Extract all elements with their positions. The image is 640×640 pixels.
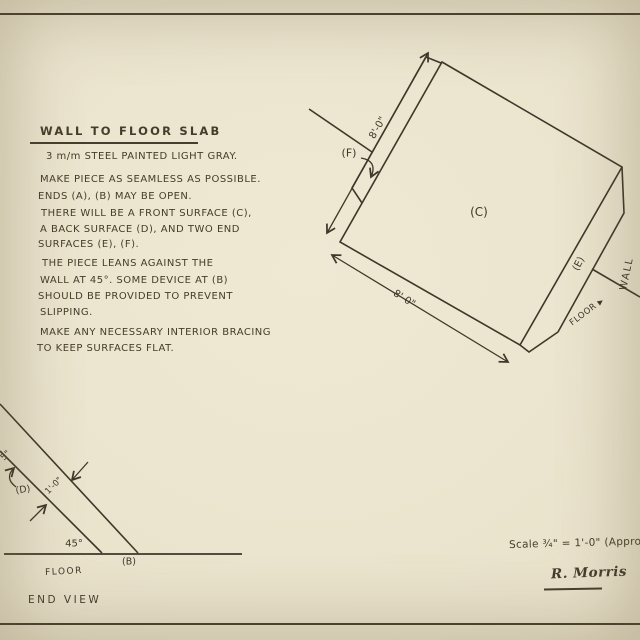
artist-signature: R. Morris <box>551 564 628 583</box>
iso-end-f-strip <box>352 57 441 203</box>
end-view-caption: END VIEW <box>28 594 101 606</box>
iso-wall-line-left <box>309 109 372 152</box>
end-view-back-surface-label: (D) <box>15 484 31 497</box>
iso-front-face-label: (C) <box>470 205 488 219</box>
end-view-d-leader-arrow <box>9 468 16 487</box>
iso-wall-line-right <box>592 269 640 297</box>
iso-end-f-label: (F) <box>342 147 357 160</box>
iso-front-face <box>340 62 622 345</box>
end-view-thickness-arrow-lower <box>30 505 46 521</box>
iso-dim-arrow-top <box>327 53 428 233</box>
drawing-sheet: WALL TO FLOOR SLAB 3 m/m STEEL PAINTED L… <box>0 0 640 640</box>
end-view-thickness-arrow-upper <box>72 462 88 480</box>
iso-dim-arrow-bottom <box>332 255 508 362</box>
end-view-linework <box>0 404 242 554</box>
end-view-bottom-edge-label: (B) <box>122 557 136 568</box>
end-view-front-line <box>0 404 138 553</box>
end-view-angle-label: 45° <box>65 539 83 550</box>
end-view-back-line <box>0 451 102 553</box>
end-view-floor-label: FLOOR <box>45 566 83 578</box>
